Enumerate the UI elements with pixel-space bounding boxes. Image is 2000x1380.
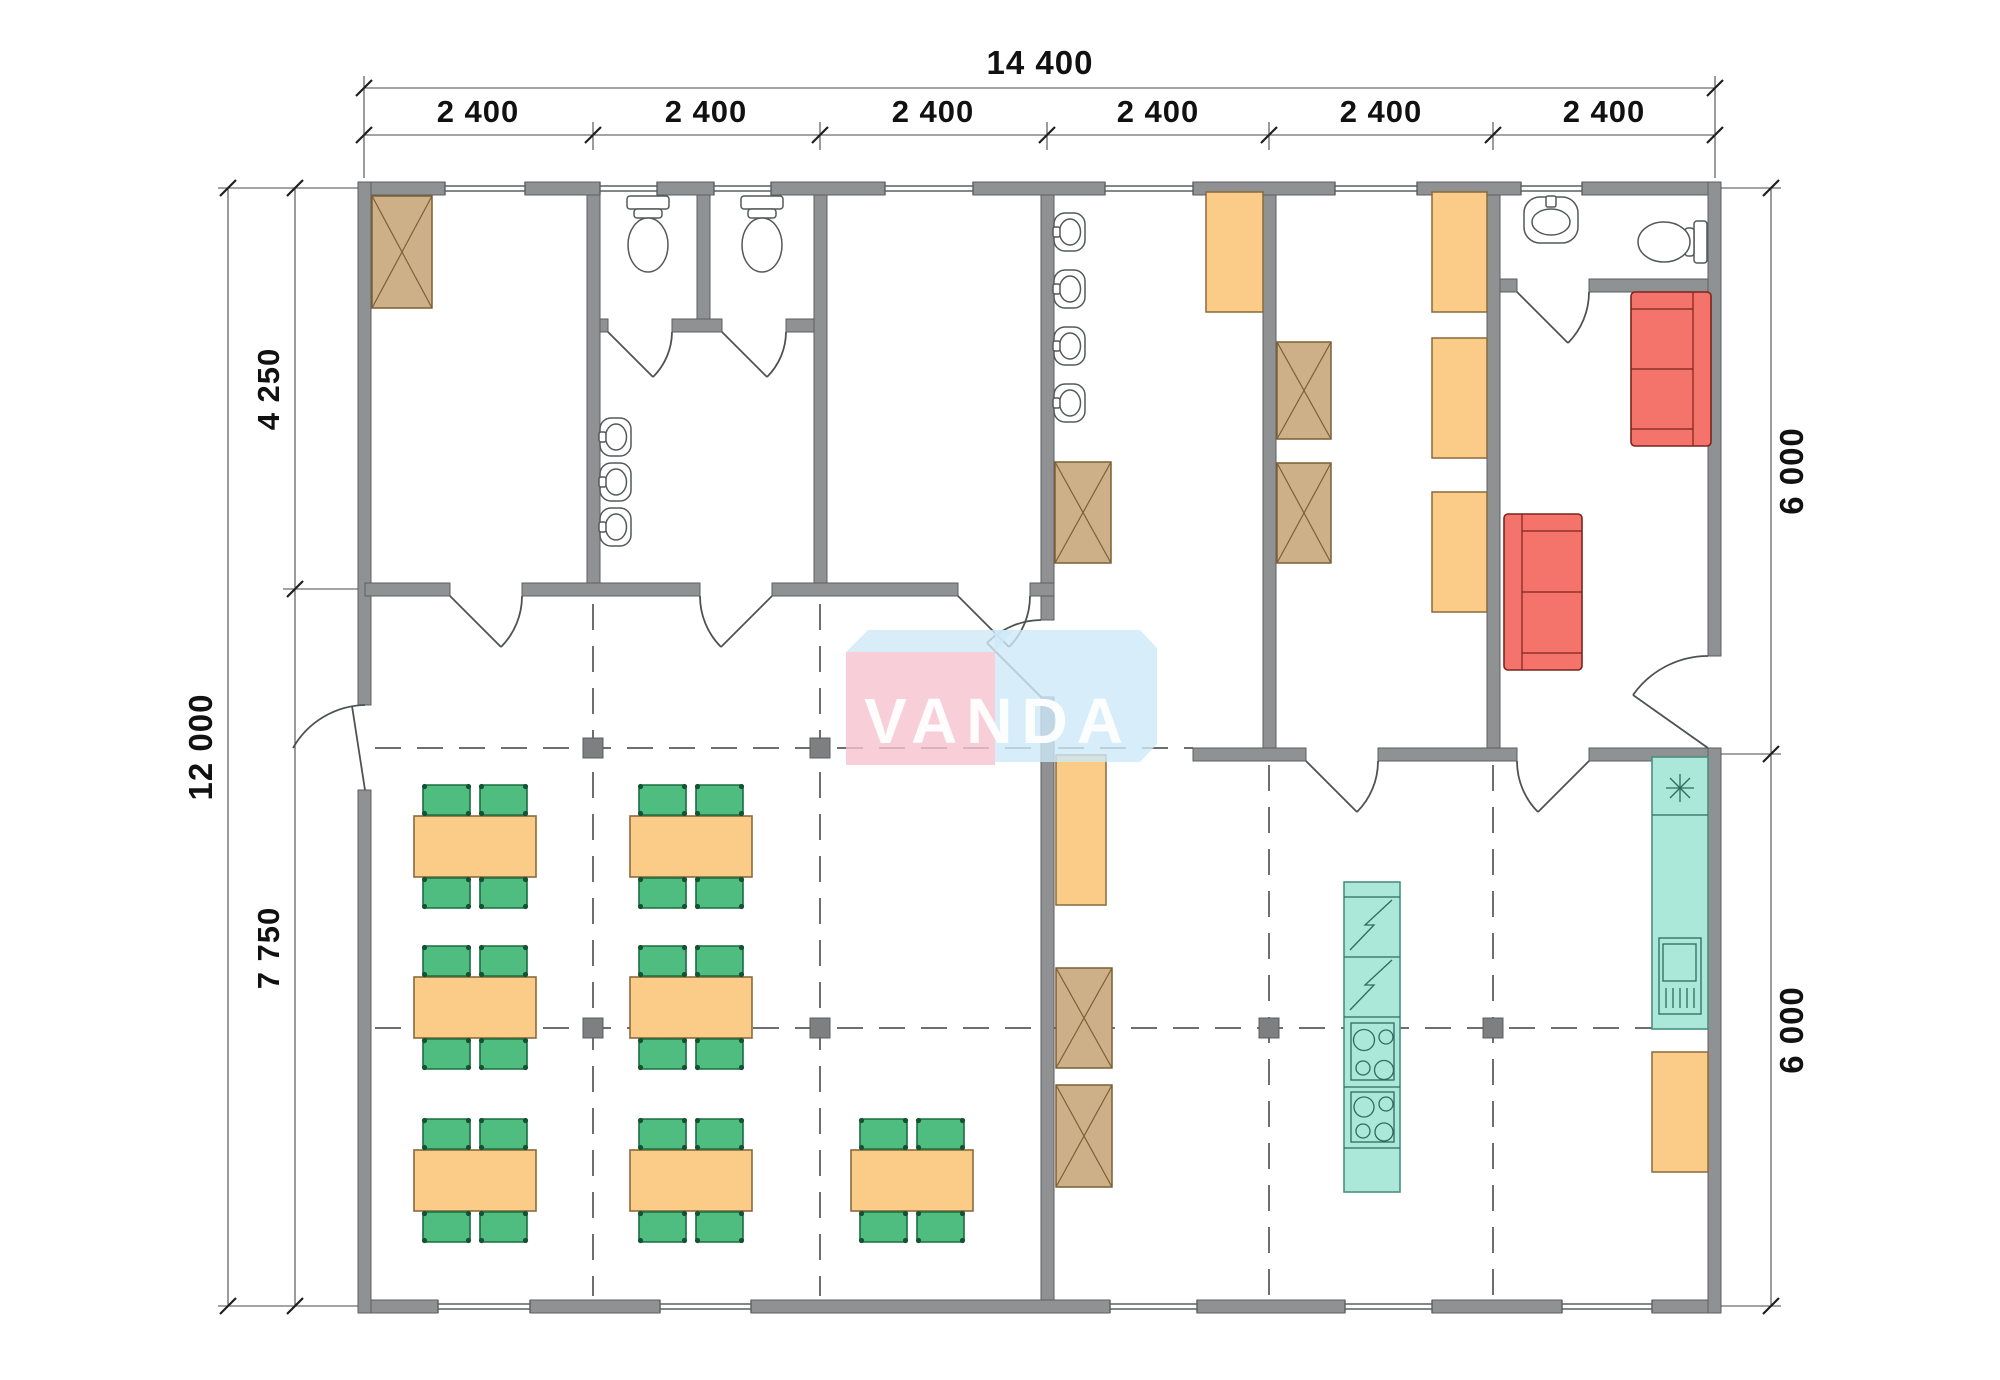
washbasin-icon (599, 463, 631, 501)
wall (365, 583, 450, 596)
wall (697, 195, 710, 319)
wall (600, 319, 608, 332)
door-wc (700, 596, 772, 647)
watermark: VANDA (846, 630, 1157, 765)
wardrobe-icon (1277, 463, 1331, 563)
wardrobe-icon (1056, 968, 1112, 1068)
window (600, 182, 657, 195)
chair (638, 945, 687, 977)
door-storage-room (450, 596, 522, 647)
wall (672, 319, 722, 332)
wall (771, 182, 885, 195)
washbasin-icon (1053, 327, 1085, 365)
door-locker-room (1306, 761, 1378, 812)
wall (657, 182, 714, 195)
wall (1193, 748, 1306, 761)
table (630, 816, 752, 877)
floor-plan-drawing: VANDA 14 400 2 400 2 400 2 400 2 400 2 4… (0, 0, 2000, 1380)
window (1562, 1300, 1652, 1313)
wardrobe-icon (372, 196, 432, 308)
dim-module-4: 2 400 (1117, 94, 1200, 129)
wall (358, 182, 371, 705)
chair (422, 1038, 471, 1070)
window (1521, 182, 1582, 195)
chair (422, 1118, 471, 1150)
cabinet-icon (1432, 492, 1487, 612)
window (714, 182, 771, 195)
chair (638, 1038, 687, 1070)
cabinet-icon (1432, 338, 1487, 458)
table (630, 977, 752, 1038)
wall (1708, 748, 1721, 1313)
dim-left-upper: 4 250 (251, 348, 286, 431)
chair (695, 945, 744, 977)
column (583, 1018, 603, 1038)
chair (695, 1118, 744, 1150)
wall (1030, 583, 1054, 596)
entrance-door-left (293, 705, 365, 790)
chair (638, 877, 687, 909)
entrance-door-right (1633, 656, 1708, 748)
dining-area (414, 784, 973, 1243)
sofa-icon (1504, 514, 1582, 670)
window (445, 182, 525, 195)
lounge-sofas (1504, 292, 1711, 670)
chair (479, 1038, 528, 1070)
wardrobe-icon (1056, 1085, 1112, 1187)
door-wc-stall-2 (722, 332, 786, 377)
wall (525, 182, 600, 195)
sofa-icon (1631, 292, 1711, 446)
washbasin-icon (1053, 384, 1085, 422)
chair (479, 784, 528, 816)
chair (422, 784, 471, 816)
dim-module-5: 2 400 (1340, 94, 1423, 129)
kitchen-island (1344, 882, 1400, 1192)
wall (1500, 279, 1517, 292)
window (1345, 1300, 1432, 1313)
toilet-icon (627, 196, 669, 272)
chair (916, 1211, 965, 1243)
column (583, 738, 603, 758)
washbasin-icon (1524, 196, 1578, 243)
cabinet-icon (1056, 755, 1106, 905)
wall (1197, 1300, 1345, 1313)
wall (358, 790, 371, 1313)
table (414, 816, 536, 877)
wardrobe-icon (1277, 342, 1331, 439)
wall (1589, 279, 1708, 292)
watermark-text: VANDA (864, 685, 1132, 757)
door-lounge (1517, 761, 1589, 812)
wall (1582, 182, 1721, 195)
chair (638, 1211, 687, 1243)
dim-module-3: 2 400 (892, 94, 975, 129)
chair (479, 945, 528, 977)
washbasin-icon (1053, 270, 1085, 308)
wall (814, 195, 827, 583)
window (1110, 1300, 1197, 1313)
chair (479, 1118, 528, 1150)
watermark-top-face (846, 630, 1013, 652)
dim-module-2: 2 400 (665, 94, 748, 129)
chair (695, 877, 744, 909)
window (1335, 182, 1417, 195)
chair (479, 1211, 528, 1243)
freezer-icon (1666, 774, 1694, 802)
window (438, 1300, 530, 1313)
door-bathroom (1517, 292, 1589, 343)
chair (422, 1211, 471, 1243)
wall (530, 1300, 660, 1313)
chair (422, 945, 471, 977)
wall (973, 182, 1105, 195)
table (414, 1150, 536, 1211)
window (660, 1300, 751, 1313)
chair (859, 1118, 908, 1150)
column (1483, 1018, 1503, 1038)
window (1105, 182, 1193, 195)
wall (1041, 195, 1054, 620)
chair (859, 1211, 908, 1243)
door-wc-stall-1 (608, 332, 672, 377)
dim-right-upper: 6 000 (1773, 427, 1810, 515)
column (810, 1018, 830, 1038)
sanitary-fixtures (599, 196, 1707, 546)
wall (1432, 1300, 1562, 1313)
washbasin-icon (599, 418, 631, 456)
chair (695, 784, 744, 816)
chair (695, 1038, 744, 1070)
wall (772, 583, 958, 596)
dim-left-total: 12 000 (182, 694, 219, 801)
wall (1487, 195, 1500, 748)
table (851, 1150, 973, 1211)
washbasin-icon (1053, 213, 1085, 251)
wall (1378, 748, 1517, 761)
wall (587, 195, 600, 583)
dim-top-total: 14 400 (987, 44, 1094, 81)
wall (1263, 195, 1276, 748)
cabinet-icon (1206, 192, 1263, 312)
chair (479, 877, 528, 909)
cabinet-icon (1432, 192, 1487, 312)
wall (522, 583, 700, 596)
floor-plan-page: VANDA 14 400 2 400 2 400 2 400 2 400 2 4… (0, 0, 2000, 1380)
wall (751, 1300, 1110, 1313)
chair (916, 1118, 965, 1150)
dim-left-lower: 7 750 (251, 907, 286, 990)
toilet-icon (741, 196, 783, 272)
dim-module-1: 2 400 (437, 94, 520, 129)
wall (1041, 697, 1054, 1300)
dim-module-6: 2 400 (1563, 94, 1646, 129)
washbasin-icon (599, 508, 631, 546)
column (810, 738, 830, 758)
dim-right-lower: 6 000 (1773, 986, 1810, 1074)
chair (422, 877, 471, 909)
chair (638, 1118, 687, 1150)
table (414, 977, 536, 1038)
chair (695, 1211, 744, 1243)
cabinet-icon (1652, 1052, 1708, 1172)
wardrobe-icon (1055, 462, 1111, 563)
kitchen-counter (1652, 757, 1708, 1029)
wall (786, 319, 814, 332)
window (885, 182, 973, 195)
chair (638, 784, 687, 816)
column (1259, 1018, 1279, 1038)
toilet-icon (1638, 221, 1707, 263)
table (630, 1150, 752, 1211)
